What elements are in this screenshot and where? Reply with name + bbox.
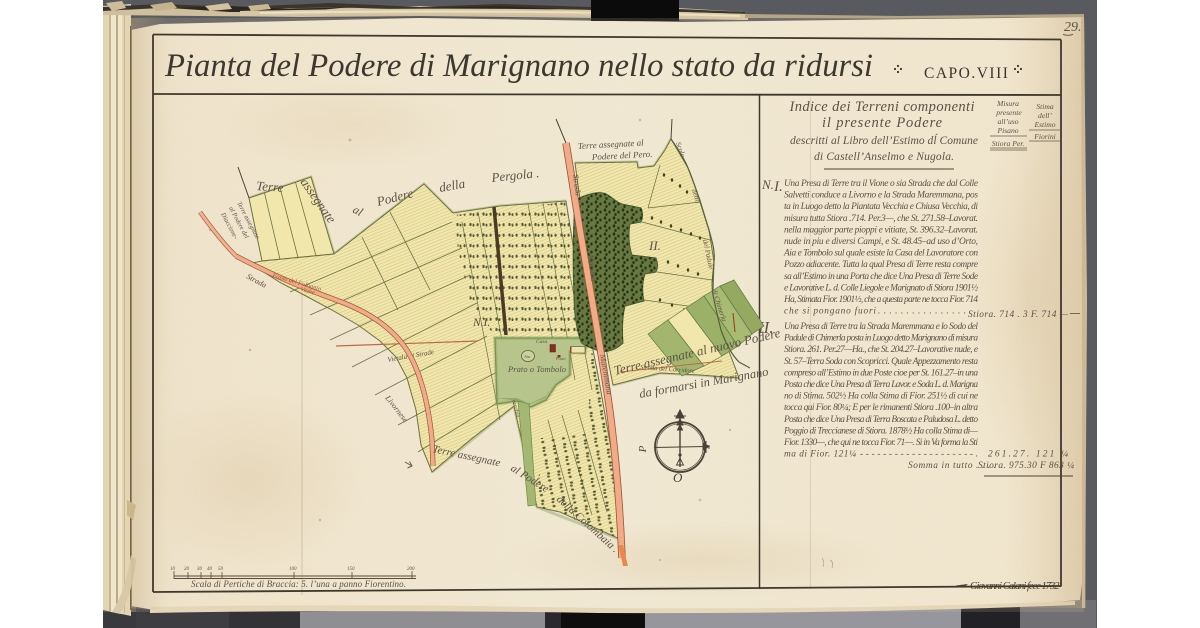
svg-text:Aia: Aia xyxy=(523,354,531,359)
svg-text:sa all’Estimo in una Porta che: sa all’Estimo in una Porta che dice Una … xyxy=(784,272,978,282)
svg-text:Misura: Misura xyxy=(996,99,1019,108)
svg-text:100: 100 xyxy=(289,567,297,572)
svg-text:- - - - - - - - - - - - - - -: - - - - - - - - - - - - - - - - - - - - … xyxy=(860,450,978,460)
svg-text:Prato o Tombolo: Prato o Tombolo xyxy=(507,364,566,374)
svg-text:Scala di Pertiche di Bracc: Scala di Pertiche di Braccia: 5. l’una a… xyxy=(191,579,406,589)
svg-text:Indice dei Terreni componenti: Indice dei Terreni componenti xyxy=(789,99,975,115)
svg-text:30: 30 xyxy=(197,567,203,572)
svg-text:Fiorini: Fiorini xyxy=(1033,132,1056,141)
svg-text:e Lavorative L. d. Colle Liego: e Lavorative L. d. Colle Liegole e Marig… xyxy=(784,282,978,293)
svg-text:misura tutta Stiora .714. Per.: misura tutta Stiora .714. Per.3—, che St… xyxy=(784,214,978,224)
svg-text:descritti al Libro dell’Estimo: descritti al Libro dell’Estimo dĺ Comune xyxy=(790,133,978,147)
svg-text:II.: II. xyxy=(648,238,661,253)
svg-text:nude in piu e diversi Campi, e: nude in piu e diversi Campi, e St. 48.45… xyxy=(784,237,978,247)
svg-text:Pozzo adiacente. Tutta la qua: Pozzo adiacente. Tutta la qual Presa di … xyxy=(783,260,978,270)
svg-text:Casa: Casa xyxy=(536,339,548,345)
svg-text:all’uso: all’uso xyxy=(997,117,1018,126)
svg-text:. . . . . . . . . . . . . . .: . . . . . . . . . . . . . . . . xyxy=(878,307,966,317)
svg-text:CAPO.VIII: CAPO.VIII xyxy=(924,65,1009,82)
svg-text:ta in Luogo detto la Piantata: ta in Luogo detto la Piantata Vecchia e … xyxy=(784,202,978,212)
svg-text:no di Stima. 502½ Ha colla Sti: no di Stima. 502½ Ha colla Stima di Fior… xyxy=(784,391,978,402)
svg-text:Posta che dice Una Presa di Te: Posta che dice Una Presa di Terra Lavor.… xyxy=(783,380,978,390)
svg-text:Aia e Tombolo sul quale esiste: Aia e Tombolo sul quale esiste la Casa d… xyxy=(783,249,978,259)
svg-text:ma di Fior. 121¼: ma di Fior. 121¼ xyxy=(784,449,856,460)
svg-text:20: 20 xyxy=(184,567,190,572)
svg-text:50: 50 xyxy=(218,567,224,572)
svg-text:I.: I. xyxy=(773,179,783,195)
svg-text:dell’: dell’ xyxy=(1038,111,1052,120)
svg-text:Stiora. 975.30 F 863 ¼: Stiora. 975.30 F 863 ¼ xyxy=(978,460,1074,471)
svg-text:Una Presa di Terre tra il Vion: Una Presa di Terre tra il Vione o sia St… xyxy=(784,179,978,189)
svg-text:che si pongano fuori: che si pongano fuori xyxy=(784,306,876,317)
svg-text:presente: presente xyxy=(995,108,1022,117)
svg-text:Fior. 1330—, che qui ne tocca: Fior. 1330—, che qui ne tocca Fior. 71—.… xyxy=(783,437,978,448)
svg-text:compreso all’Estimo in due Pos: compreso all’Estimo in due Poste cioe pe… xyxy=(784,368,978,378)
svg-text:Pisano: Pisano xyxy=(996,126,1018,135)
svg-text:Ha, Stimata Fior. 1901½, che a: Ha, Stimata Fior. 1901½, che a questa pa… xyxy=(783,294,978,305)
svg-text:Stiora Per.: Stiora Per. xyxy=(992,139,1025,148)
svg-text:Pozzo: Pozzo xyxy=(555,356,566,361)
svg-text:Estimo: Estimo xyxy=(1033,120,1055,129)
svg-text:O: O xyxy=(673,470,683,485)
svg-text:40: 40 xyxy=(207,567,213,572)
svg-text:Pianta del Podere di Marignano: Pianta del Podere di Marignano nello sta… xyxy=(164,48,873,84)
svg-text:Stiora. 714 . 3 F. 714 —: Stiora. 714 . 3 F. 714 — xyxy=(968,310,1069,320)
svg-text:Posta che dice Una Presa di Te: Posta che dice Una Presa di Terra Boscat… xyxy=(783,415,978,425)
svg-text:N.: N. xyxy=(761,177,774,192)
svg-text:Stima: Stima xyxy=(1036,102,1054,111)
svg-text:10: 10 xyxy=(170,567,176,572)
svg-text:St. 57–Terra Soda con Scopricc: St. 57–Terra Soda con Scopricci. Quale A… xyxy=(784,357,978,367)
svg-text:Una Presa di Terre tra la Stra: Una Presa di Terre tra la Strada Maremma… xyxy=(784,322,978,332)
svg-text:P: P xyxy=(637,445,649,453)
svg-text:Padule di Chimerla posta in Lu: Padule di Chimerla posta in Luogo detto … xyxy=(783,334,978,344)
svg-text:200: 200 xyxy=(407,567,415,572)
svg-text:tocca qui Fior. 80¼; E per le: tocca qui Fior. 80¼; E per le rimanenti … xyxy=(784,402,978,413)
svg-text:di Castell’Anselmo e Nugola.: di Castell’Anselmo e Nugola. xyxy=(814,151,954,163)
svg-text:il presente Podere: il presente Podere xyxy=(822,115,943,131)
svg-text:Terre: Terre xyxy=(256,178,284,195)
svg-text:N.I.: N.I. xyxy=(472,317,490,329)
svg-text:nella maggior parte pioppi e v: nella maggior parte pioppi e vitiate, St… xyxy=(784,225,978,235)
svg-text:Giovanni Calani fece 1732-: Giovanni Calani fece 1732- xyxy=(970,581,1063,592)
svg-text:Poggio di Treccianese di Stior: Poggio di Treccianese di Stiora. 1878½ H… xyxy=(783,425,979,436)
svg-text:Stiora. 261. Per.27—Ha., che S: Stiora. 261. Per.27—Ha., che St. 204.27–… xyxy=(784,345,978,355)
svg-text:Salvetti conduce a Livorno e l: Salvetti conduce a Livorno e la Strada M… xyxy=(784,191,978,201)
svg-text:29.: 29. xyxy=(1064,20,1082,35)
svg-text:150: 150 xyxy=(347,567,355,572)
